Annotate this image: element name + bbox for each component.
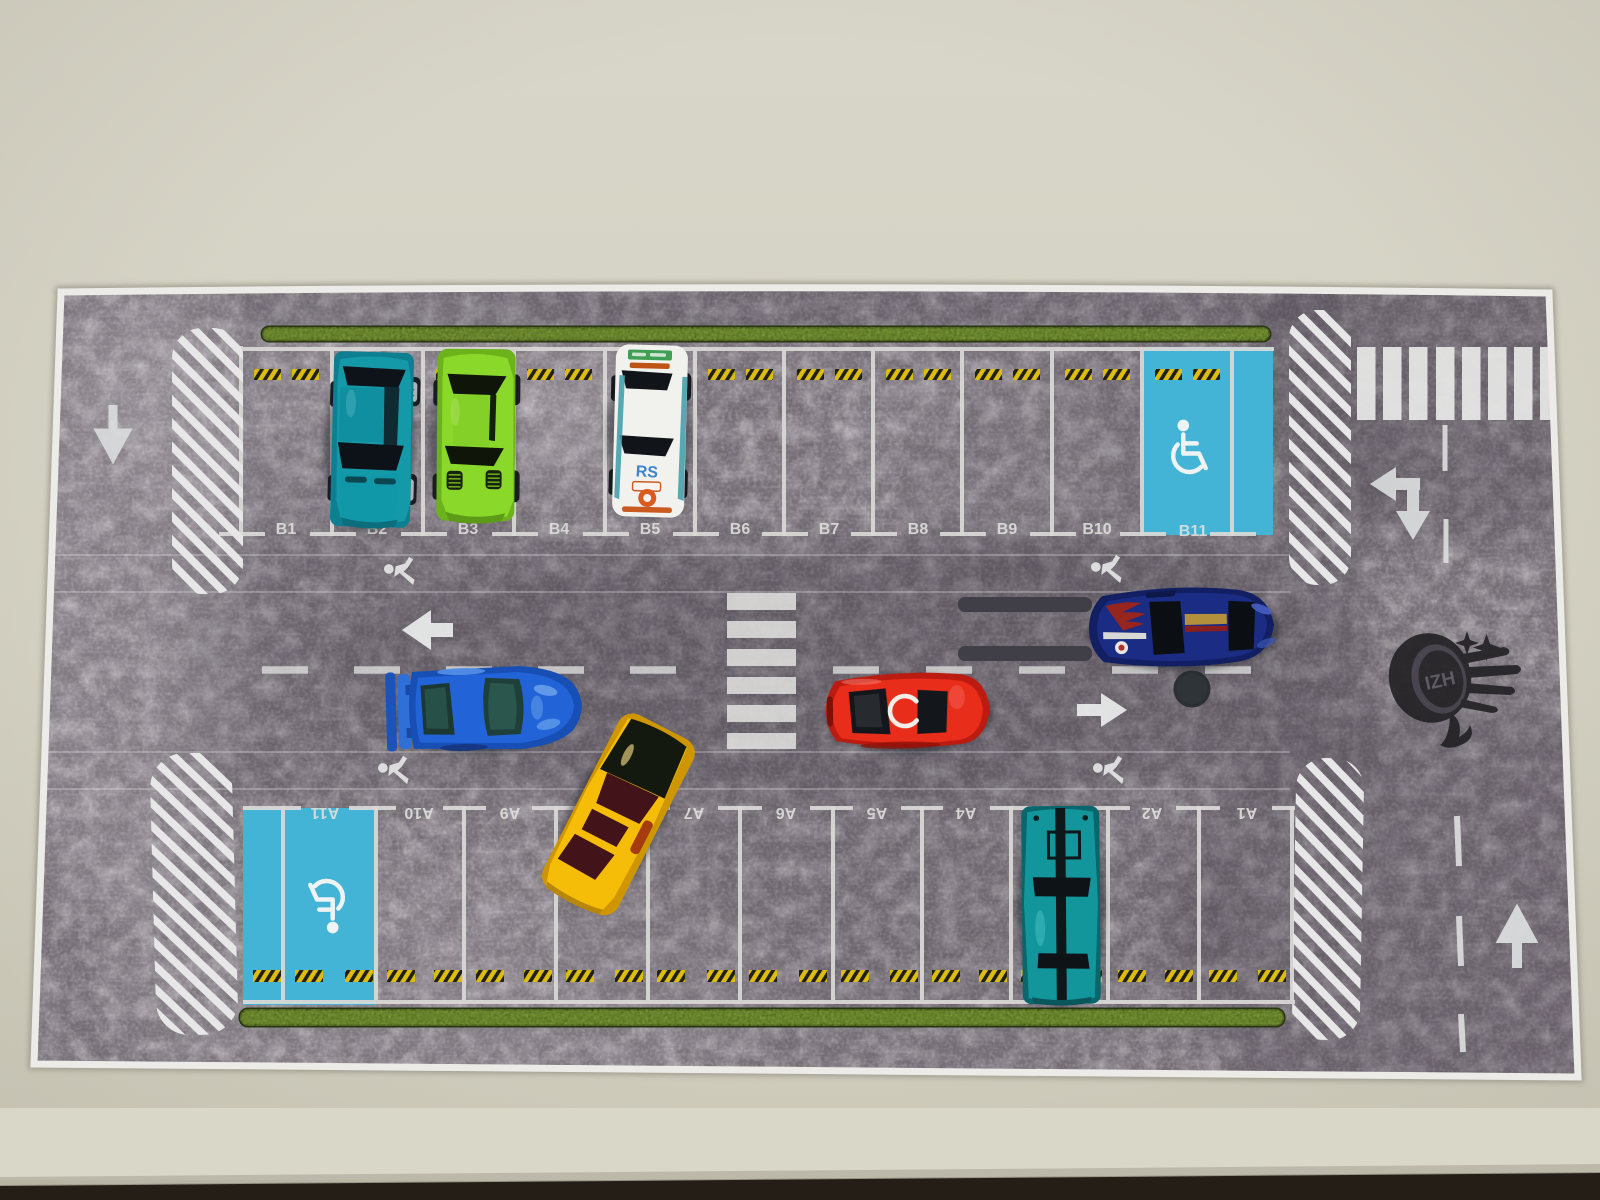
svg-text:A7: A7 (684, 804, 705, 821)
svg-text:A5: A5 (867, 804, 888, 821)
svg-text:A11: A11 (311, 804, 340, 821)
svg-text:RS: RS (635, 463, 659, 481)
svg-text:B9: B9 (997, 521, 1018, 538)
svg-text:B10: B10 (1082, 521, 1111, 538)
svg-text:B6: B6 (730, 521, 751, 538)
svg-text:A6: A6 (776, 804, 797, 821)
svg-text:A2: A2 (1142, 804, 1163, 821)
svg-text:B8: B8 (908, 521, 929, 538)
svg-text:B1: B1 (276, 521, 297, 538)
svg-text:A4: A4 (956, 804, 977, 821)
svg-text:A10: A10 (404, 804, 433, 821)
svg-text:A9: A9 (500, 804, 521, 821)
svg-text:B5: B5 (640, 521, 661, 538)
svg-text:B4: B4 (549, 521, 570, 538)
svg-text:B3: B3 (458, 521, 479, 538)
svg-text:B7: B7 (819, 521, 840, 538)
svg-text:A1: A1 (1237, 804, 1258, 821)
svg-text:B11: B11 (1179, 523, 1208, 540)
